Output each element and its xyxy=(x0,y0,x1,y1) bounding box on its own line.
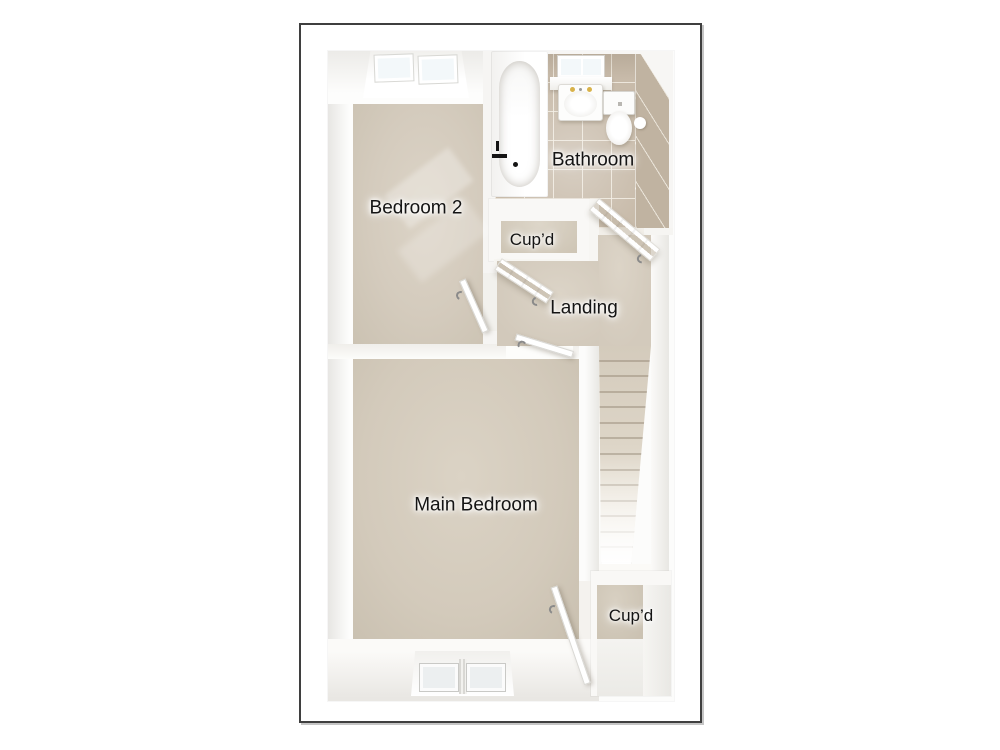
bathroom-corner xyxy=(641,54,669,98)
room-label-main-bedroom: Main Bedroom xyxy=(414,495,538,518)
toilet-icon xyxy=(606,111,632,145)
cupboard-bottom-room xyxy=(591,571,671,696)
bathroom-window xyxy=(558,56,604,78)
toilet-roll-holder-icon xyxy=(634,117,646,129)
wall-west xyxy=(328,51,353,701)
cupboard-bottom-wall-east xyxy=(643,585,671,696)
room-label-bathroom: Bathroom xyxy=(552,150,634,173)
window-pane xyxy=(420,664,458,691)
window-pane xyxy=(375,54,414,81)
landing-wall-east xyxy=(651,235,669,571)
sink-icon xyxy=(558,84,603,121)
cupboard-bottom-wall-south xyxy=(597,639,643,696)
bathtub-icon xyxy=(491,51,548,197)
tap-spout-icon xyxy=(579,88,582,91)
bath-faucet-icon xyxy=(496,141,499,151)
window-mullion xyxy=(581,59,583,75)
window-pane xyxy=(467,664,505,691)
toilet-flush-button-icon xyxy=(618,102,622,106)
main-bedroom-window xyxy=(411,651,514,696)
sink-bowl xyxy=(564,91,597,117)
tap-icon xyxy=(587,87,592,92)
window-mullion xyxy=(459,659,467,694)
window-pane xyxy=(419,55,458,83)
bathtub-basin xyxy=(499,61,540,187)
tap-icon xyxy=(570,87,575,92)
room-label-bedroom-2: Bedroom 2 xyxy=(370,198,463,221)
room-label-cupboard-top: Cup’d xyxy=(510,230,554,250)
bath-faucet-icon xyxy=(492,154,507,158)
room-label-cupboard-bottom: Cup’d xyxy=(609,606,653,626)
bath-drain-icon xyxy=(513,162,518,167)
page-background: Bedroom 2 Bathroom Cup’d Landing Main Be… xyxy=(0,0,1000,750)
room-label-landing: Landing xyxy=(550,298,618,321)
bedroom-2-window xyxy=(363,51,469,98)
floorplan-frame: Bedroom 2 Bathroom Cup’d Landing Main Be… xyxy=(299,23,702,723)
